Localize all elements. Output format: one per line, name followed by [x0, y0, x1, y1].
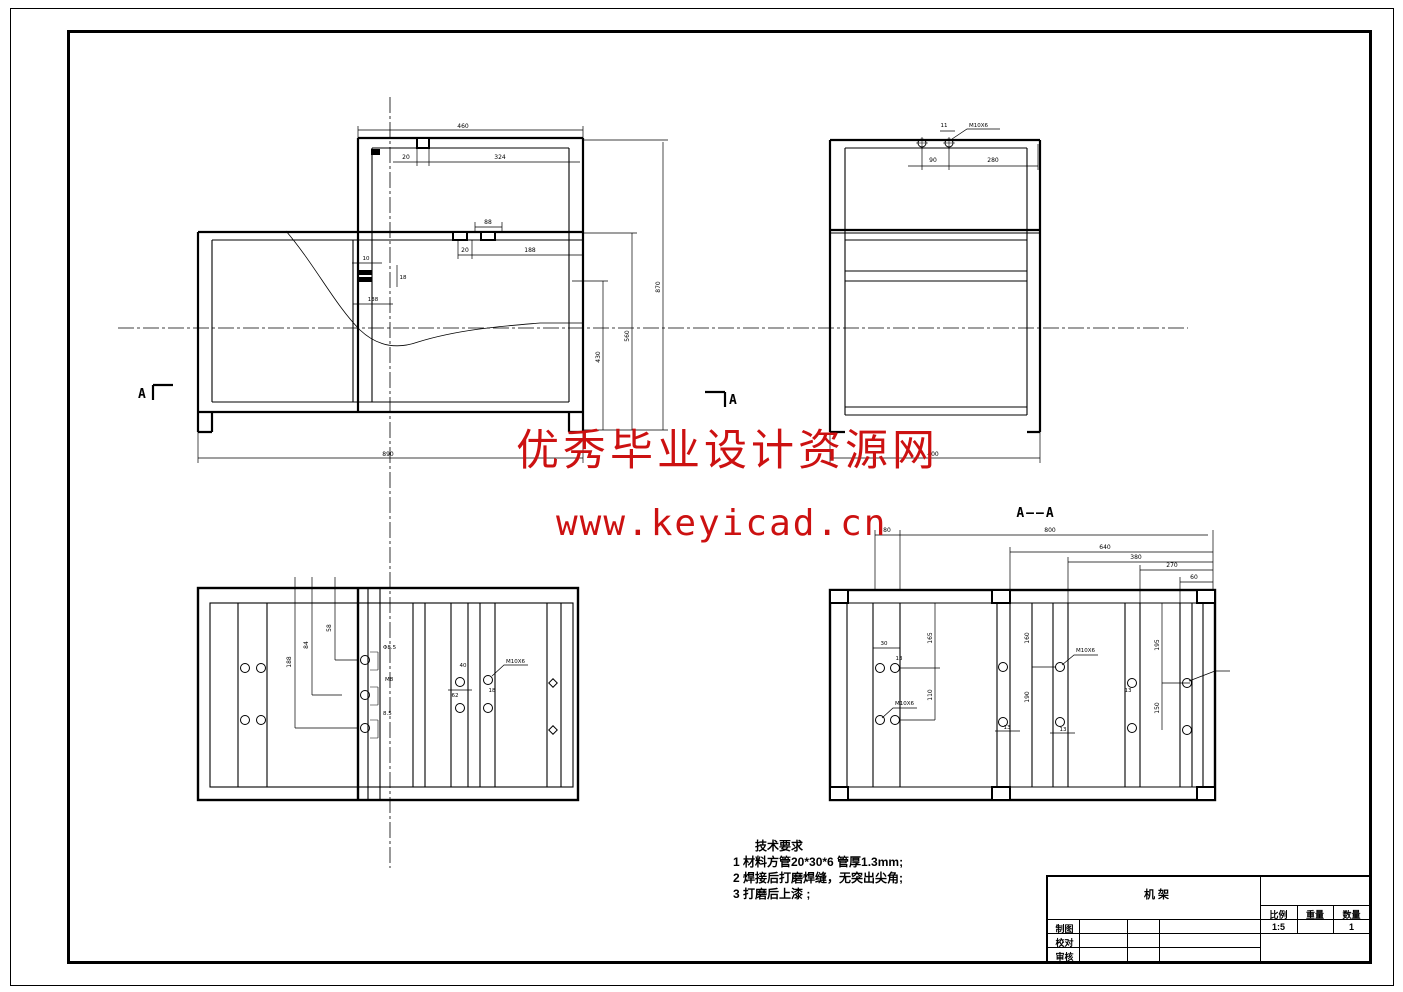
qty-label: 数量 — [1333, 908, 1370, 921]
weight-label: 重量 — [1297, 908, 1333, 921]
dim: 40 — [460, 663, 467, 669]
dim: 138 — [368, 297, 379, 303]
thread-callout: M10X6 — [969, 123, 989, 129]
dim: 150 — [1154, 702, 1161, 714]
dim: 11 — [941, 123, 948, 129]
dim: 84 — [303, 641, 310, 649]
auditor-label: 审核 — [1050, 950, 1079, 963]
qty-value: 1 — [1333, 922, 1370, 932]
section-view: 80 800 640 380 270 60 165 110 160 190 19… — [830, 527, 1230, 800]
dim: 270 — [1166, 562, 1178, 569]
dim: 58 — [326, 624, 333, 632]
dim: 18 — [489, 688, 496, 694]
dim: 88 — [484, 219, 492, 226]
dim: M8 — [385, 677, 394, 683]
title-block-line — [1048, 933, 1370, 934]
tech-req-item: 2 焊接后打磨焊缝，无突出尖角; — [733, 870, 903, 886]
section-marker-a-left: A — [138, 387, 146, 402]
dim: 190 — [1024, 691, 1031, 703]
drawing-sheet: 460 20 324 88 20 188 10 18 138 430 560 8… — [0, 0, 1403, 992]
side-view: 11 M10X6 90 280 400 — [830, 123, 1040, 463]
dim: 280 — [987, 157, 999, 164]
dim: 160 — [1024, 632, 1031, 644]
dim: 110 — [927, 689, 934, 701]
dim: 165 — [927, 632, 934, 644]
drafter-label: 制图 — [1050, 922, 1079, 935]
title-block-line — [1127, 919, 1128, 963]
dim: 430 — [595, 351, 602, 363]
dim: 62 — [452, 693, 459, 699]
tech-req-title: 技术要求 — [733, 838, 903, 854]
dim: 800 — [1044, 527, 1056, 534]
section-marker-a-right: A — [729, 393, 737, 408]
thread-callout: M10X6 — [895, 701, 915, 707]
tech-req-item: 1 材料方管20*30*6 管厚1.3mm; — [733, 854, 903, 870]
dim: 20 — [402, 154, 410, 161]
dim: Φ8.5 — [383, 645, 397, 651]
dim: 195 — [1154, 639, 1161, 651]
title-block: 机架 比例 重量 数量 1:5 1 制图 校对 审核 — [1046, 875, 1370, 963]
technical-requirements: 技术要求 1 材料方管20*30*6 管厚1.3mm; 2 焊接后打磨焊缝，无突… — [733, 838, 903, 902]
dim: 20 — [461, 247, 469, 254]
section-title: A——A — [1016, 506, 1055, 521]
dim-front-top: 460 — [457, 123, 469, 130]
break-curve — [286, 231, 582, 346]
part-name: 机架 — [1108, 886, 1208, 902]
dim: 10 — [363, 256, 370, 262]
watermark-site-name: 优秀毕业设计资源网 — [516, 430, 939, 473]
dim: 90 — [929, 157, 937, 164]
dim: 890 — [382, 451, 394, 458]
section-holes — [876, 663, 1192, 735]
dim: 8.5 — [383, 711, 392, 717]
dim: 188 — [286, 656, 293, 668]
dim: 13 — [1125, 688, 1132, 694]
plan-view: 188 84 58 Φ8.5 M8 8.5 40 62 18 M10X6 — [198, 577, 578, 800]
title-block-line — [1079, 919, 1080, 963]
tech-req-item: 3 打磨后上漆 ; — [733, 886, 903, 902]
title-block-line — [1159, 919, 1160, 963]
drawing-canvas: 460 20 324 88 20 188 10 18 138 430 560 8… — [0, 0, 1403, 992]
scale-label: 比例 — [1260, 908, 1297, 921]
dim: 13 — [1060, 727, 1067, 733]
dim: 13 — [896, 656, 903, 662]
thread-callout: M10X6 — [506, 659, 526, 665]
dim: 30 — [881, 641, 888, 647]
dim: 380 — [1130, 554, 1142, 561]
watermark-site-url: www.keyicad.cn — [556, 506, 887, 542]
front-view: 460 20 324 88 20 188 10 18 138 430 560 8… — [198, 123, 668, 463]
dim: 640 — [1099, 544, 1111, 551]
dim: 870 — [655, 281, 662, 293]
dim: 560 — [624, 330, 631, 342]
dim: 13 — [1004, 725, 1011, 731]
dim: 18 — [400, 275, 407, 281]
dim: 188 — [524, 247, 536, 254]
checker-label: 校对 — [1050, 936, 1079, 949]
dim: 60 — [1190, 574, 1198, 581]
scale-value: 1:5 — [1260, 922, 1297, 932]
title-block-line — [1260, 905, 1370, 906]
thread-callout: M10X6 — [1076, 648, 1096, 654]
dim: 324 — [494, 154, 506, 161]
